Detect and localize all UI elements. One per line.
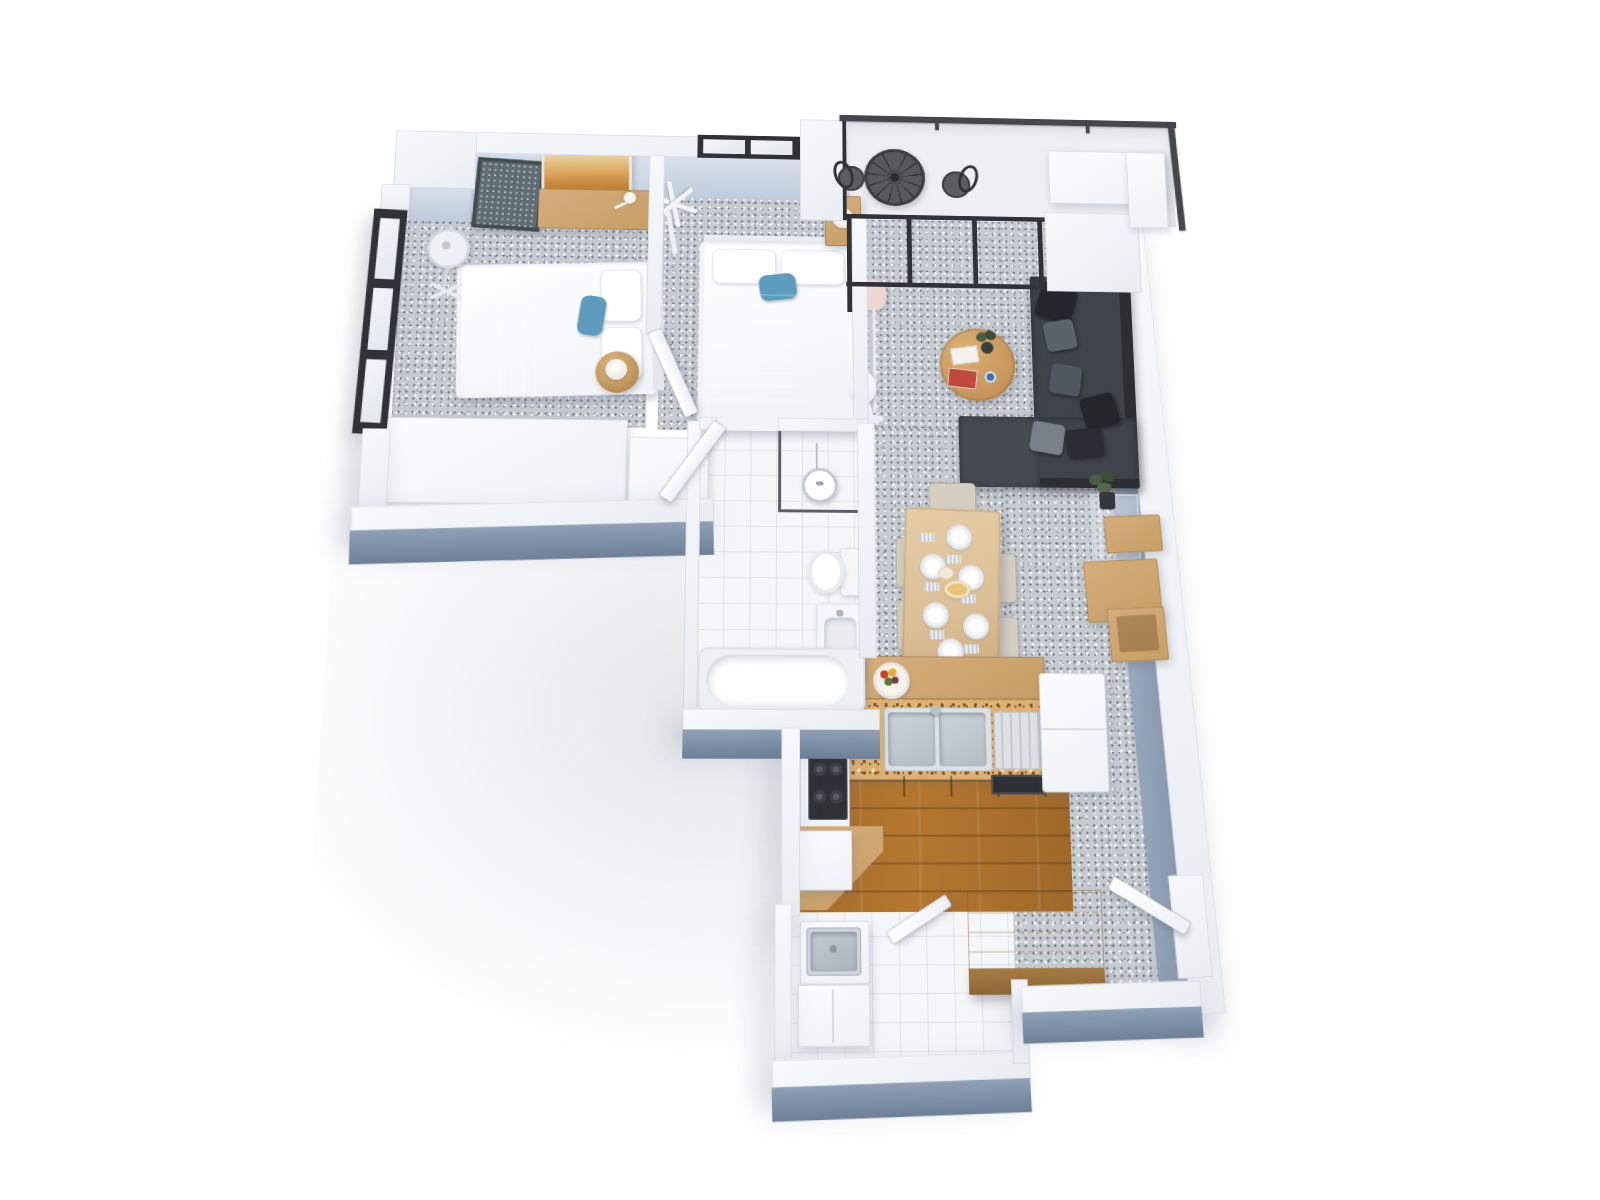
sofa-cushion — [1029, 420, 1066, 456]
bed-1-pillow — [600, 269, 642, 321]
gas-cooktop-icon — [808, 757, 847, 820]
bedroom-1-wardrobe — [370, 417, 628, 505]
bathtub — [697, 647, 865, 713]
napkin-cutlery — [919, 533, 934, 542]
kitchen-left-wall — [781, 728, 800, 917]
place-setting — [963, 613, 990, 639]
toilet-icon — [806, 546, 862, 598]
double-bed-2 — [697, 235, 863, 434]
shower-head-icon — [802, 468, 838, 503]
napkin-cutlery — [946, 555, 961, 564]
place-setting — [946, 524, 972, 550]
sofa-cushion — [1049, 363, 1083, 397]
serving-dish — [944, 580, 970, 598]
desk-lamp-icon — [612, 192, 638, 212]
sofa-cushion — [1042, 319, 1078, 353]
sofa-chaise — [958, 416, 1040, 487]
kitchen-corner-appliance — [798, 830, 852, 890]
apartment-3d-plan — [0, 3, 1600, 1200]
corner-block-face — [411, 186, 471, 221]
living-sliding-doors — [846, 214, 1049, 290]
sink-drainer — [993, 712, 1041, 770]
corner-block-top-left — [393, 130, 478, 189]
oven-icon — [991, 775, 1045, 795]
coffee-table-cup — [984, 371, 996, 382]
bedroom-desk — [537, 188, 656, 230]
timber-storage-chest — [967, 890, 1106, 995]
coffee-table-plant-icon — [972, 330, 1002, 358]
shower-screen-line-v — [778, 425, 781, 512]
small-bowl — [938, 567, 954, 580]
laundry-trough — [806, 927, 861, 976]
living-top-right-wall — [1044, 212, 1142, 293]
napkin-cutlery — [929, 630, 944, 639]
napkin-cutlery — [924, 582, 939, 591]
laundry-base-cabinet — [798, 984, 871, 1047]
balcony-bench-corner — [1126, 152, 1169, 228]
kitchen-double-sink — [884, 707, 993, 771]
sofa-cushion — [1064, 427, 1105, 459]
kitchen-faucet-icon — [930, 705, 940, 715]
bed-1-blue-runner — [498, 266, 544, 394]
pedestal-fan-icon — [421, 228, 471, 325]
bedroom-2-top-window — [697, 135, 800, 160]
place-setting — [923, 602, 950, 628]
media-console-b — [1107, 606, 1170, 663]
bathroom-right-wall — [857, 422, 877, 658]
floating-shelf — [1103, 514, 1163, 553]
floor-plan-stage — [0, 0, 1600, 1200]
balustrade-post — [1085, 120, 1089, 133]
balustrade-post — [935, 117, 939, 130]
left-wall-lower — [358, 428, 391, 510]
fruit-bowl-icon — [873, 662, 910, 699]
laundry-left-wall — [774, 904, 791, 1068]
entry-bottom-wall-face — [1022, 1006, 1204, 1043]
napkin-cutlery — [964, 644, 979, 653]
fridge — [1039, 673, 1110, 792]
bistro-chair-left-icon — [834, 159, 867, 202]
bathroom-top-wall-right-seg — [778, 418, 868, 432]
bistro-chair-right-icon — [940, 162, 975, 207]
leaning-mirror-icon — [471, 157, 546, 232]
coffee-table-book-red — [947, 368, 978, 390]
shower-hose-icon — [816, 443, 818, 470]
side-table-plant-icon — [1089, 471, 1126, 514]
